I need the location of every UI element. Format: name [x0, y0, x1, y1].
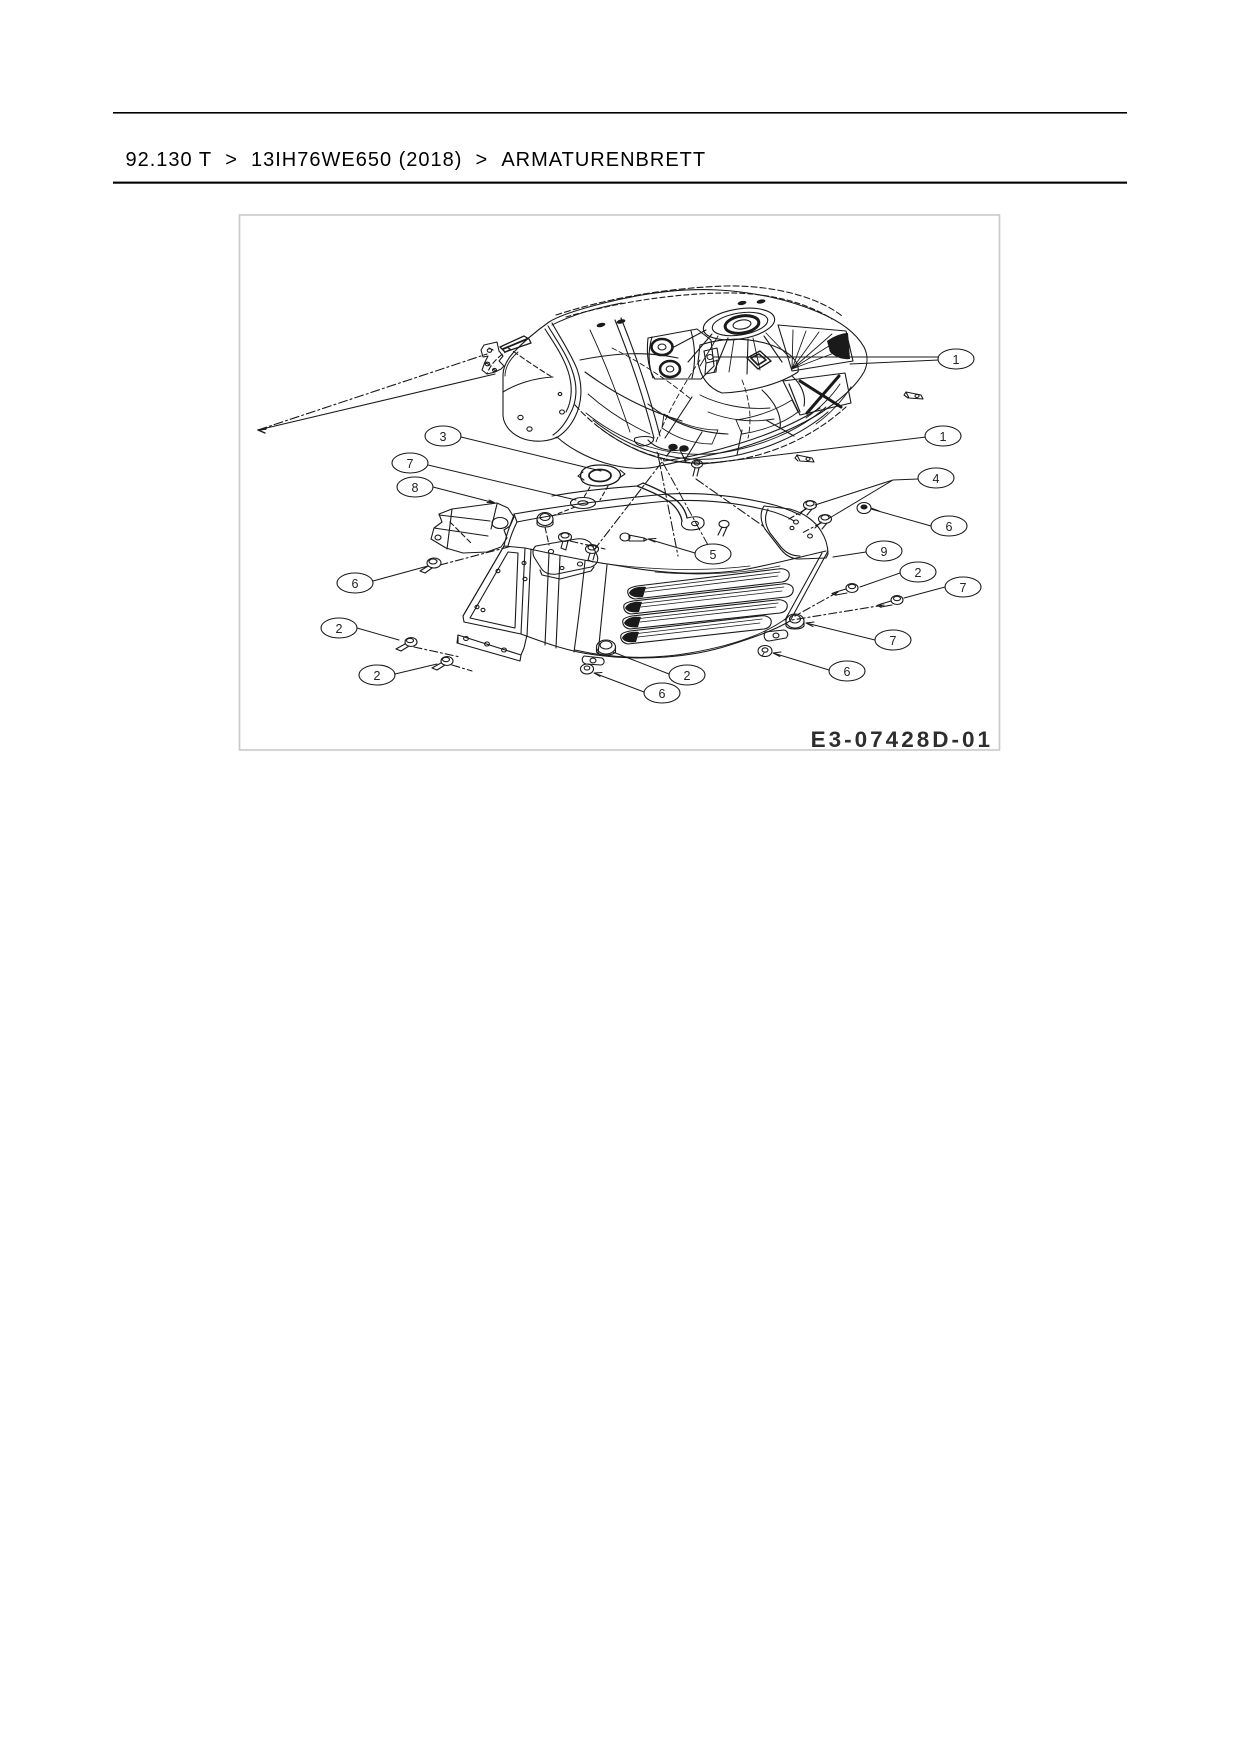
svg-text:92.130 T > 13IH76WE650 (2018: 92.130 T > 13IH76WE650 (2018) > ARMATURE… [126, 149, 707, 171]
svg-text:1: 1 [953, 353, 960, 367]
svg-text:9: 9 [881, 545, 888, 559]
svg-text:2: 2 [684, 669, 691, 683]
svg-text:5: 5 [710, 548, 717, 562]
svg-text:6: 6 [946, 520, 953, 534]
svg-text:3: 3 [440, 430, 447, 444]
svg-text:7: 7 [407, 457, 414, 471]
svg-text:4: 4 [933, 472, 940, 486]
svg-text:8: 8 [412, 481, 419, 495]
svg-text:2: 2 [374, 669, 381, 683]
svg-text:6: 6 [659, 687, 666, 701]
svg-text:6: 6 [352, 577, 359, 591]
svg-text:E3-07428D-01: E3-07428D-01 [811, 727, 993, 752]
svg-text:2: 2 [336, 622, 343, 636]
svg-text:7: 7 [890, 634, 897, 648]
svg-text:7: 7 [960, 581, 967, 595]
svg-text:1: 1 [940, 430, 947, 444]
svg-text:2: 2 [915, 566, 922, 580]
svg-text:6: 6 [844, 665, 851, 679]
